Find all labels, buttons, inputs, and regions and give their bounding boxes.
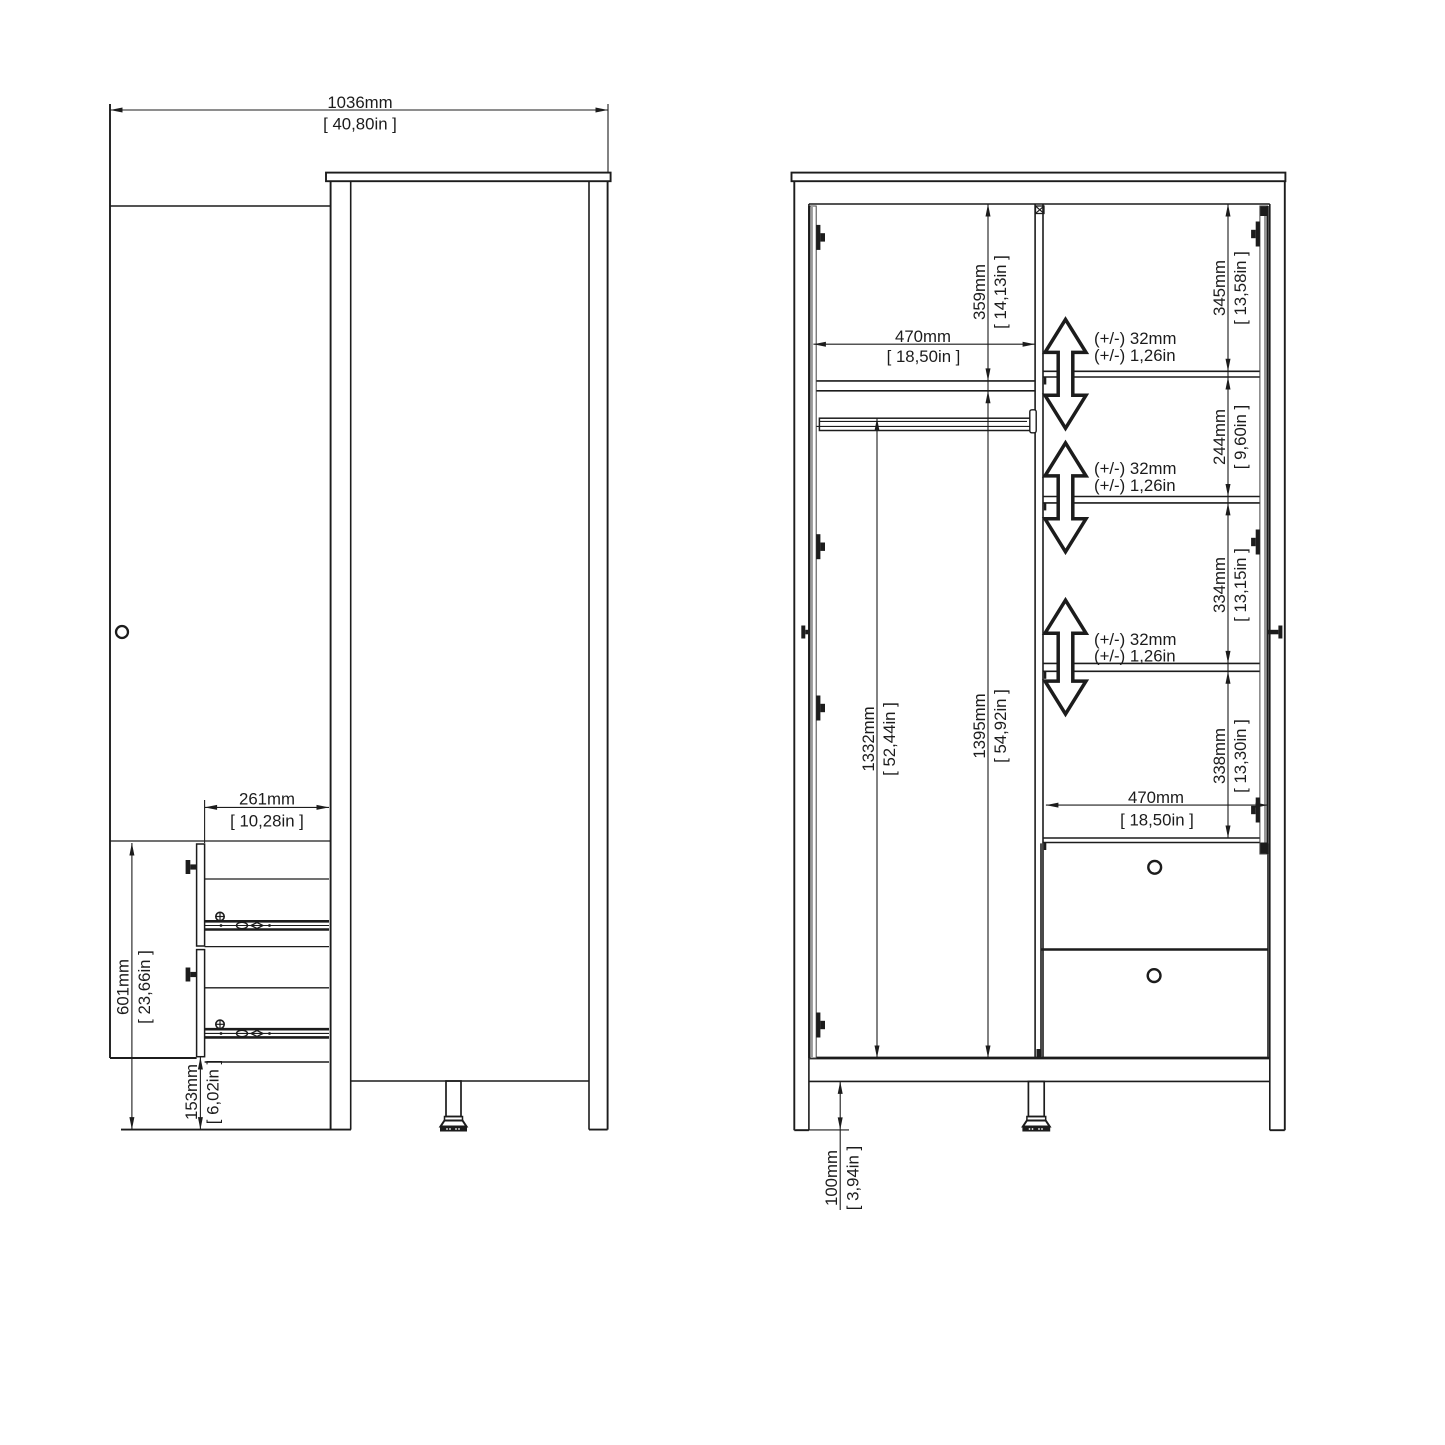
svg-text:338mm: 338mm [1210, 728, 1229, 784]
svg-text:470mm: 470mm [895, 327, 951, 346]
svg-text:[ 18,50in ]: [ 18,50in ] [887, 347, 961, 366]
svg-text:(+/-) 1,26in: (+/-) 1,26in [1094, 476, 1176, 495]
svg-text:1036mm: 1036mm [327, 93, 392, 112]
svg-text:153mm: 153mm [182, 1064, 201, 1120]
svg-text:[ 13,15in ]: [ 13,15in ] [1231, 548, 1250, 622]
svg-text:100mm: 100mm [822, 1150, 841, 1206]
svg-text:[ 13,58in ]: [ 13,58in ] [1231, 251, 1250, 325]
svg-text:334mm: 334mm [1210, 557, 1229, 613]
svg-text:[ 3,94in ]: [ 3,94in ] [843, 1146, 862, 1210]
svg-text:244mm: 244mm [1210, 409, 1229, 465]
svg-text:1332mm: 1332mm [859, 706, 878, 771]
svg-text:[ 6,02in ]: [ 6,02in ] [204, 1060, 223, 1124]
svg-text:261mm: 261mm [239, 790, 295, 809]
svg-text:[ 18,50in ]: [ 18,50in ] [1120, 811, 1194, 830]
svg-text:[ 14,13in ]: [ 14,13in ] [991, 255, 1010, 329]
svg-text:[ 40,80in ]: [ 40,80in ] [323, 115, 397, 134]
svg-text:470mm: 470mm [1128, 788, 1184, 807]
svg-text:345mm: 345mm [1210, 260, 1229, 316]
svg-text:[ 13,30in ]: [ 13,30in ] [1231, 719, 1250, 793]
svg-text:[ 10,28in ]: [ 10,28in ] [230, 812, 304, 831]
svg-text:[ 23,66in ]: [ 23,66in ] [135, 950, 154, 1024]
svg-text:1395mm: 1395mm [970, 693, 989, 758]
svg-text:[ 52,44in ]: [ 52,44in ] [880, 702, 899, 776]
svg-text:359mm: 359mm [970, 264, 989, 320]
svg-text:601mm: 601mm [114, 959, 133, 1015]
svg-text:[ 9,60in ]: [ 9,60in ] [1231, 405, 1250, 469]
svg-text:[ 54,92in ]: [ 54,92in ] [991, 689, 1010, 763]
svg-text:(+/-) 1,26in: (+/-) 1,26in [1094, 346, 1176, 365]
svg-text:(+/-) 1,26in: (+/-) 1,26in [1094, 647, 1176, 666]
